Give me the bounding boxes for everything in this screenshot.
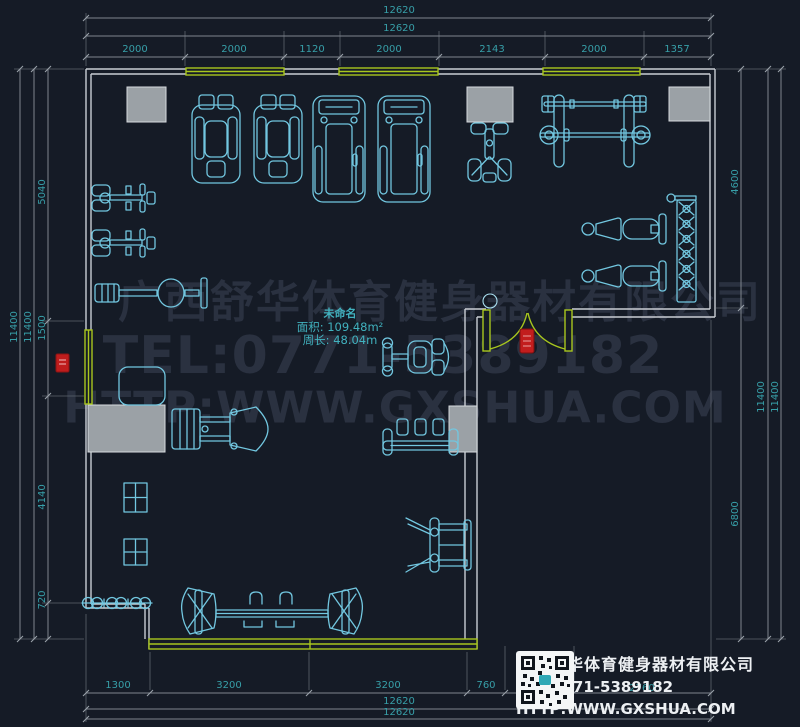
shoulder-press-machine: [383, 338, 449, 376]
grid-table: [124, 483, 147, 512]
dimension-label-right: 11400: [757, 381, 767, 413]
flat-bench: [582, 261, 666, 291]
room-info: 未命名 面积: 109.48m² 周长: 48.04m: [297, 308, 384, 347]
door-jamb: [483, 310, 490, 351]
entrance-door: [483, 294, 572, 353]
dimension-label-top: 2143: [479, 45, 504, 55]
column: [669, 87, 710, 121]
dimension-label-left: 11400: [10, 311, 20, 343]
floor-mat: [119, 367, 165, 405]
structural-columns: [88, 87, 710, 452]
treadmill: [378, 96, 430, 202]
dimension-label-top: 12620: [383, 24, 415, 34]
dimension-label-top: 1357: [664, 45, 689, 55]
dimension-label-bottom: 1300: [105, 681, 130, 691]
plate-rack: [667, 194, 696, 302]
room-perimeter: 周长: 48.04m: [297, 334, 384, 347]
dimension-label-left: 1500: [38, 315, 48, 340]
door-jamb: [565, 310, 572, 351]
dimension-label-bottom: 3200: [375, 681, 400, 691]
dimension-label-bottom: 12620: [383, 697, 415, 707]
pec-deck-machine: [468, 123, 511, 182]
dimension-label-bottom: 760: [476, 681, 495, 691]
grid-table: [124, 539, 147, 565]
window: [339, 68, 438, 75]
dimension-label-top: 1120: [299, 45, 324, 55]
window: [85, 330, 92, 404]
barbell-rack: [540, 95, 650, 167]
rowing-trainer: [92, 229, 155, 257]
dimension-label-top: 2000: [221, 45, 246, 55]
cable-crossover-machine: [182, 588, 363, 634]
lat-row-machine: [95, 278, 207, 308]
dimension-label-right: 11400: [771, 381, 781, 413]
qr-code: [516, 651, 574, 709]
title-block: 广西舒华体育健身器材有限公司 TEL:0771-5389182 HTTP:WWW…: [516, 651, 754, 718]
rowing-trainer: [92, 184, 155, 212]
door-exit-marker: [520, 329, 534, 353]
dimension-label-left: 11400: [24, 311, 34, 343]
qr-center-logo: [539, 675, 551, 685]
dimension-label-top: 2000: [376, 45, 401, 55]
dimension-label-left: 720: [38, 590, 48, 609]
dimension-label-left: 4140: [38, 484, 48, 509]
column: [88, 405, 165, 452]
window-wall-bottom: [149, 639, 477, 649]
row-bench-machine: [383, 419, 458, 455]
window: [543, 68, 640, 75]
dimension-label-top: 2000: [581, 45, 606, 55]
floor-plan-drawing: [0, 0, 800, 727]
cad-floor-plan-view: 广西舒华体育健身器材有限公司 TEL:0771-5389182 HTTP:WWW…: [0, 0, 800, 727]
room-area: 面积: 109.48m²: [297, 321, 384, 334]
dimension-label-bottom: 3200: [216, 681, 241, 691]
dimension-label-top: 12620: [383, 6, 415, 16]
gym-equipment: [82, 95, 696, 634]
dimension-label-right: 6800: [731, 501, 741, 526]
squat-rack-machine: [406, 518, 471, 572]
massage-chair: [192, 95, 240, 183]
dimension-label-right: 4600: [731, 169, 741, 194]
round-column: [483, 294, 497, 308]
dimension-label-left: 5040: [38, 179, 48, 204]
flat-bench: [582, 214, 666, 244]
leg-press-machine: [172, 407, 268, 451]
dimension-label-top: 2000: [122, 45, 147, 55]
column: [127, 87, 166, 122]
fire-hydrant-symbol: [56, 354, 69, 372]
massage-chair: [254, 95, 302, 183]
column: [467, 87, 513, 122]
treadmill: [313, 96, 365, 202]
window: [186, 68, 284, 75]
room-name: 未命名: [297, 308, 384, 321]
dimension-label-bottom: 12620: [383, 708, 415, 718]
dumbbell-set: [82, 598, 152, 609]
